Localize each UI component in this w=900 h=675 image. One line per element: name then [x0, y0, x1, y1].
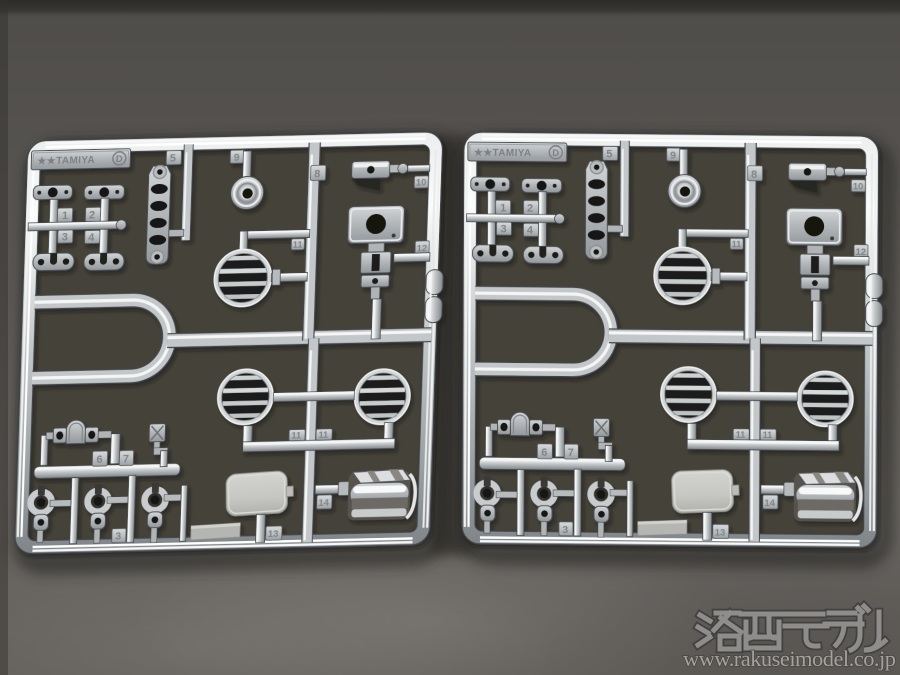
svg-text:★★TAMIYA: ★★TAMIYA: [37, 155, 95, 167]
svg-text:8: 8: [314, 168, 321, 180]
svg-text:7: 7: [123, 453, 130, 465]
svg-text:11: 11: [318, 430, 328, 440]
svg-text:www.rakuseimodel.co.jp: www.rakuseimodel.co.jp: [683, 646, 896, 671]
svg-text:9: 9: [234, 152, 240, 164]
svg-text:11: 11: [291, 431, 301, 441]
svg-text:3: 3: [62, 232, 69, 244]
svg-text:13: 13: [268, 529, 279, 540]
svg-text:14: 14: [318, 498, 330, 509]
svg-text:10: 10: [416, 177, 427, 188]
svg-text:1: 1: [62, 210, 69, 222]
svg-text:6: 6: [96, 454, 103, 466]
svg-text:11: 11: [293, 240, 303, 250]
svg-text:D: D: [116, 154, 123, 165]
svg-text:2: 2: [89, 209, 96, 221]
svg-text:5: 5: [170, 153, 177, 165]
svg-text:3: 3: [115, 531, 121, 543]
